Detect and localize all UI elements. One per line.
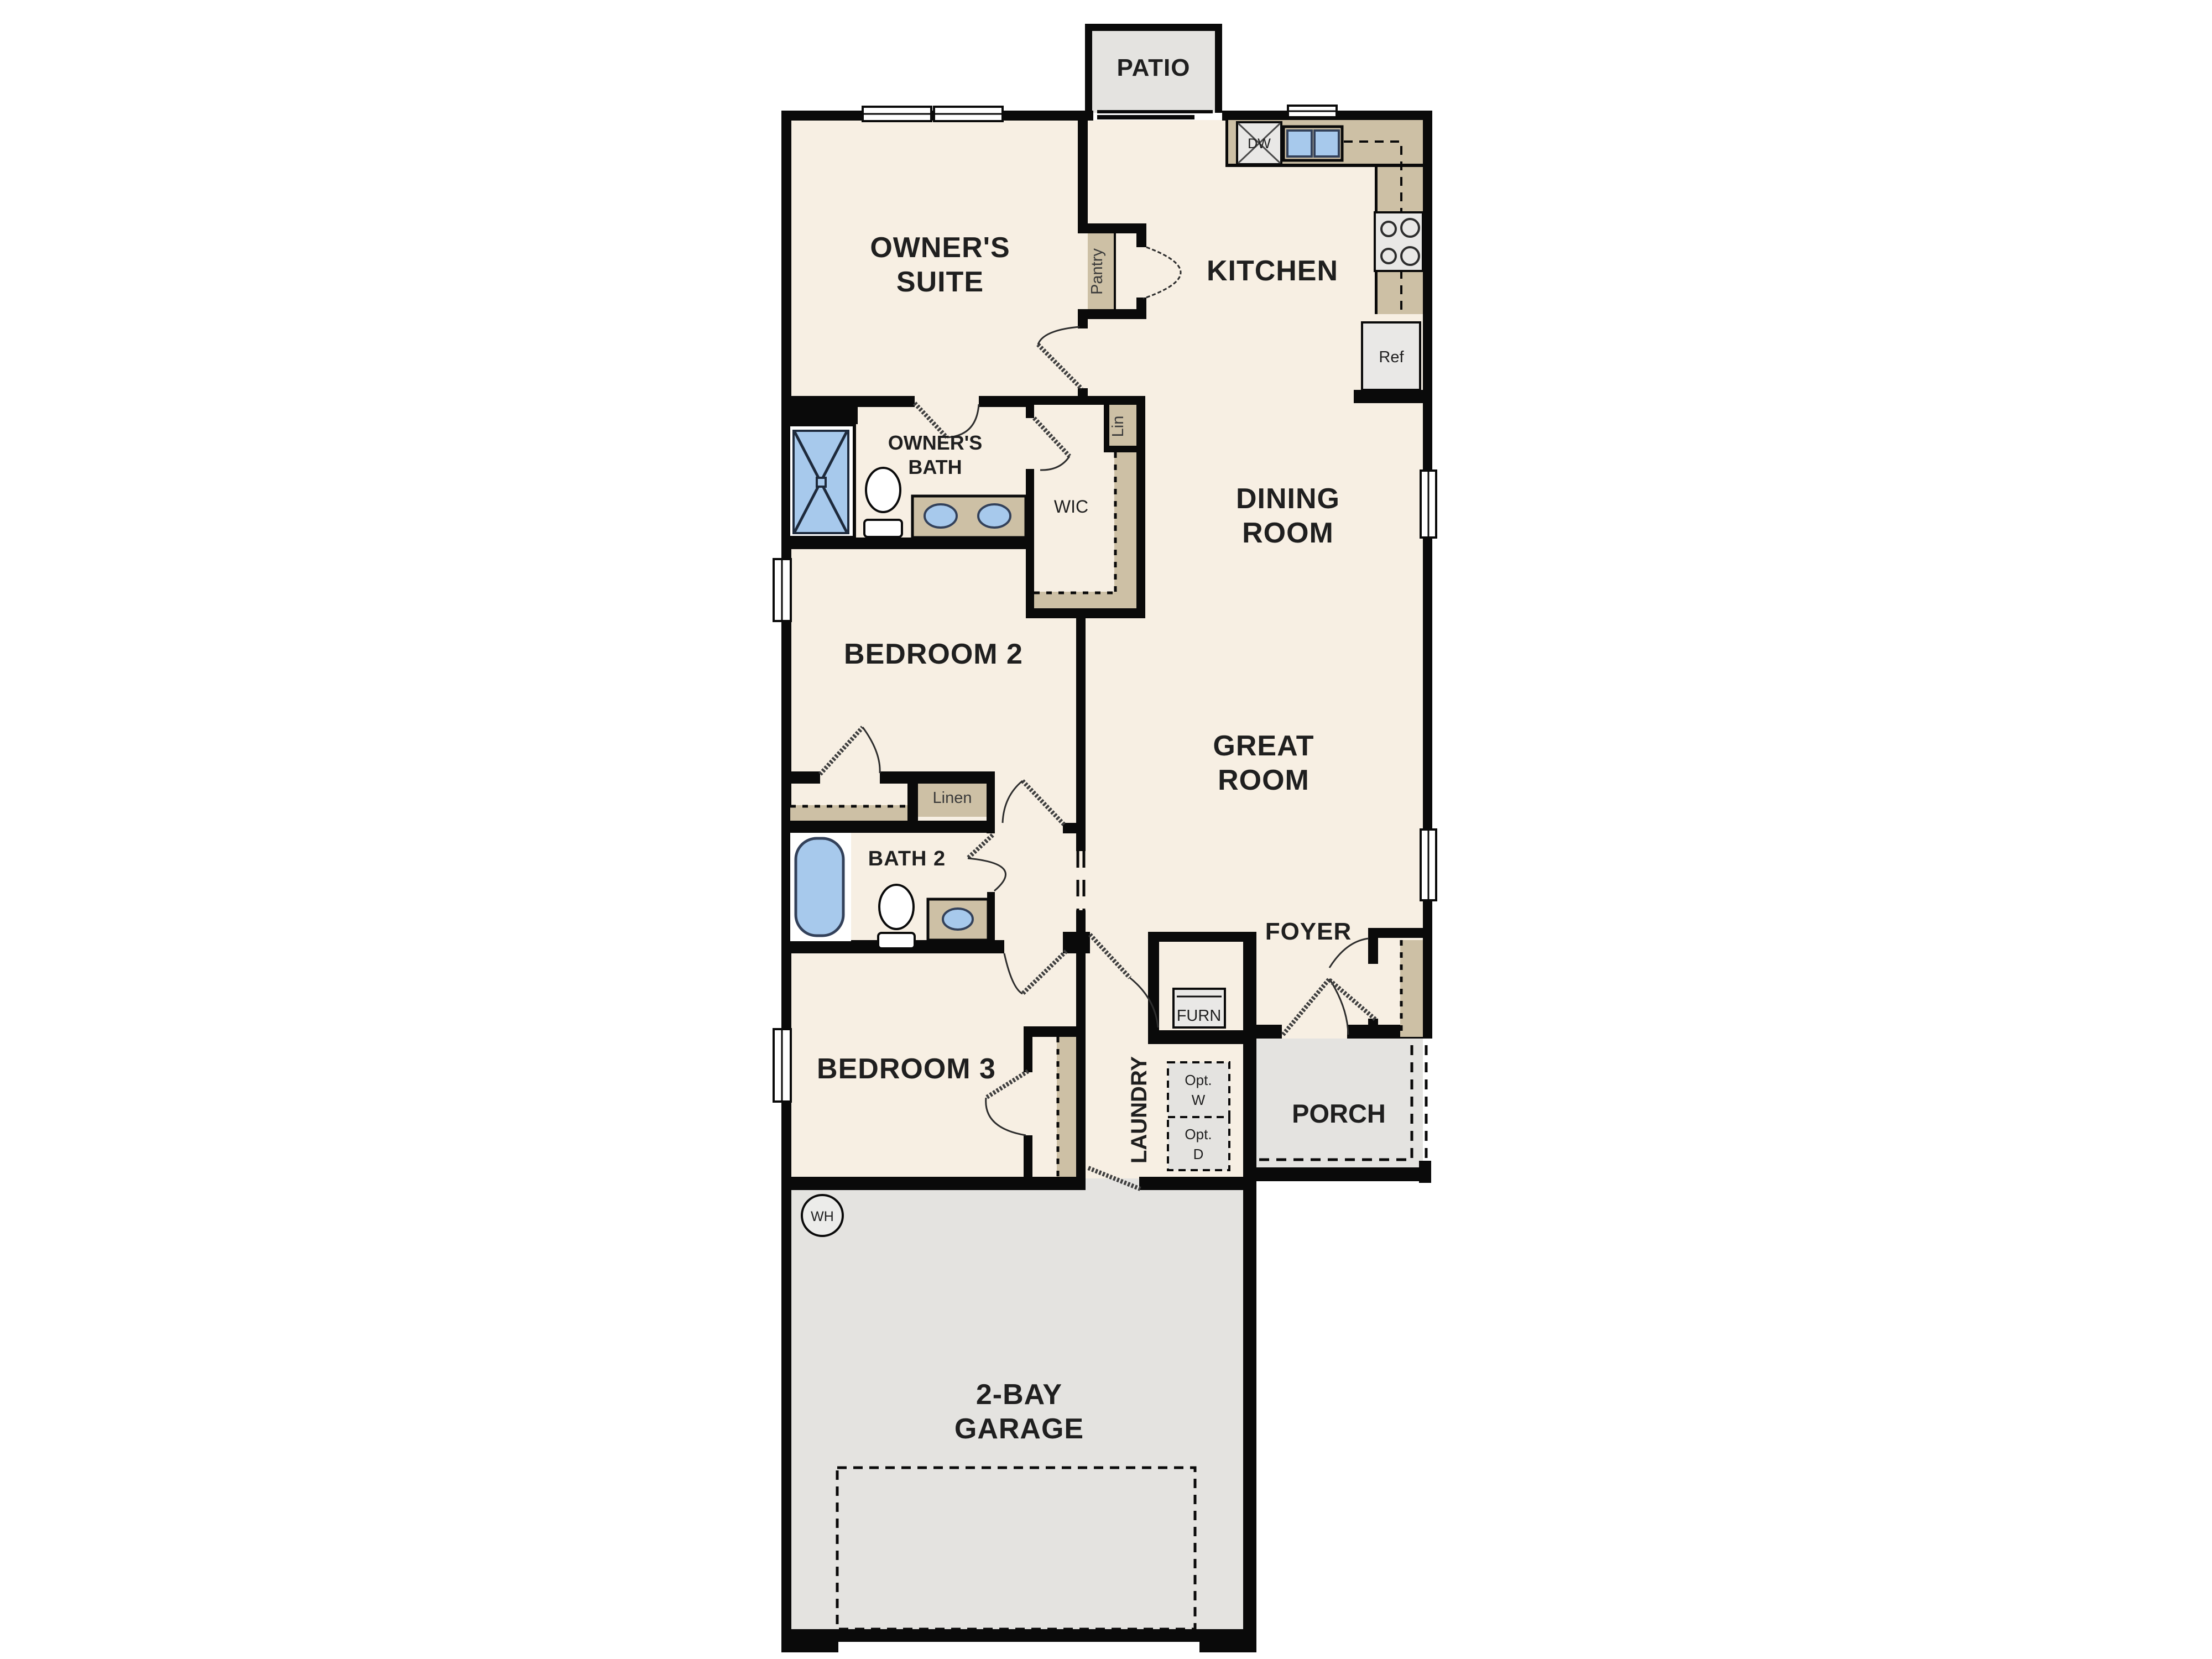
svg-text:FURN: FURN xyxy=(1177,1007,1222,1025)
svg-text:W: W xyxy=(1192,1092,1206,1108)
svg-text:BATH 2: BATH 2 xyxy=(868,847,946,870)
svg-text:D: D xyxy=(1193,1146,1204,1162)
svg-text:OWNER'S: OWNER'S xyxy=(870,232,1010,264)
svg-text:Ref: Ref xyxy=(1379,348,1404,366)
svg-text:Opt.: Opt. xyxy=(1185,1126,1212,1142)
svg-text:BATH: BATH xyxy=(908,456,962,478)
svg-text:GARAGE: GARAGE xyxy=(954,1413,1084,1445)
svg-text:Pantry: Pantry xyxy=(1088,248,1106,295)
svg-text:LAUNDRY: LAUNDRY xyxy=(1127,1056,1151,1164)
svg-text:FOYER: FOYER xyxy=(1265,918,1352,945)
svg-text:ROOM: ROOM xyxy=(1242,517,1334,549)
svg-text:DINING: DINING xyxy=(1236,483,1340,515)
svg-text:BEDROOM 3: BEDROOM 3 xyxy=(817,1053,996,1085)
svg-text:WIC: WIC xyxy=(1054,497,1088,517)
svg-text:ROOM: ROOM xyxy=(1218,764,1310,796)
svg-text:KITCHEN: KITCHEN xyxy=(1207,255,1338,287)
svg-text:PORCH: PORCH xyxy=(1292,1099,1386,1128)
svg-text:Lin: Lin xyxy=(1109,416,1127,437)
svg-text:OWNER'S: OWNER'S xyxy=(888,431,983,454)
svg-text:BEDROOM 2: BEDROOM 2 xyxy=(844,638,1023,670)
svg-text:Linen: Linen xyxy=(933,789,972,807)
svg-text:GREAT: GREAT xyxy=(1213,730,1314,762)
svg-text:Opt.: Opt. xyxy=(1185,1072,1212,1088)
svg-text:SUITE: SUITE xyxy=(896,266,984,298)
svg-text:PATIO: PATIO xyxy=(1117,54,1191,81)
svg-text:WH: WH xyxy=(811,1209,834,1224)
svg-text:2-BAY: 2-BAY xyxy=(976,1379,1062,1411)
svg-text:DW: DW xyxy=(1248,136,1271,152)
